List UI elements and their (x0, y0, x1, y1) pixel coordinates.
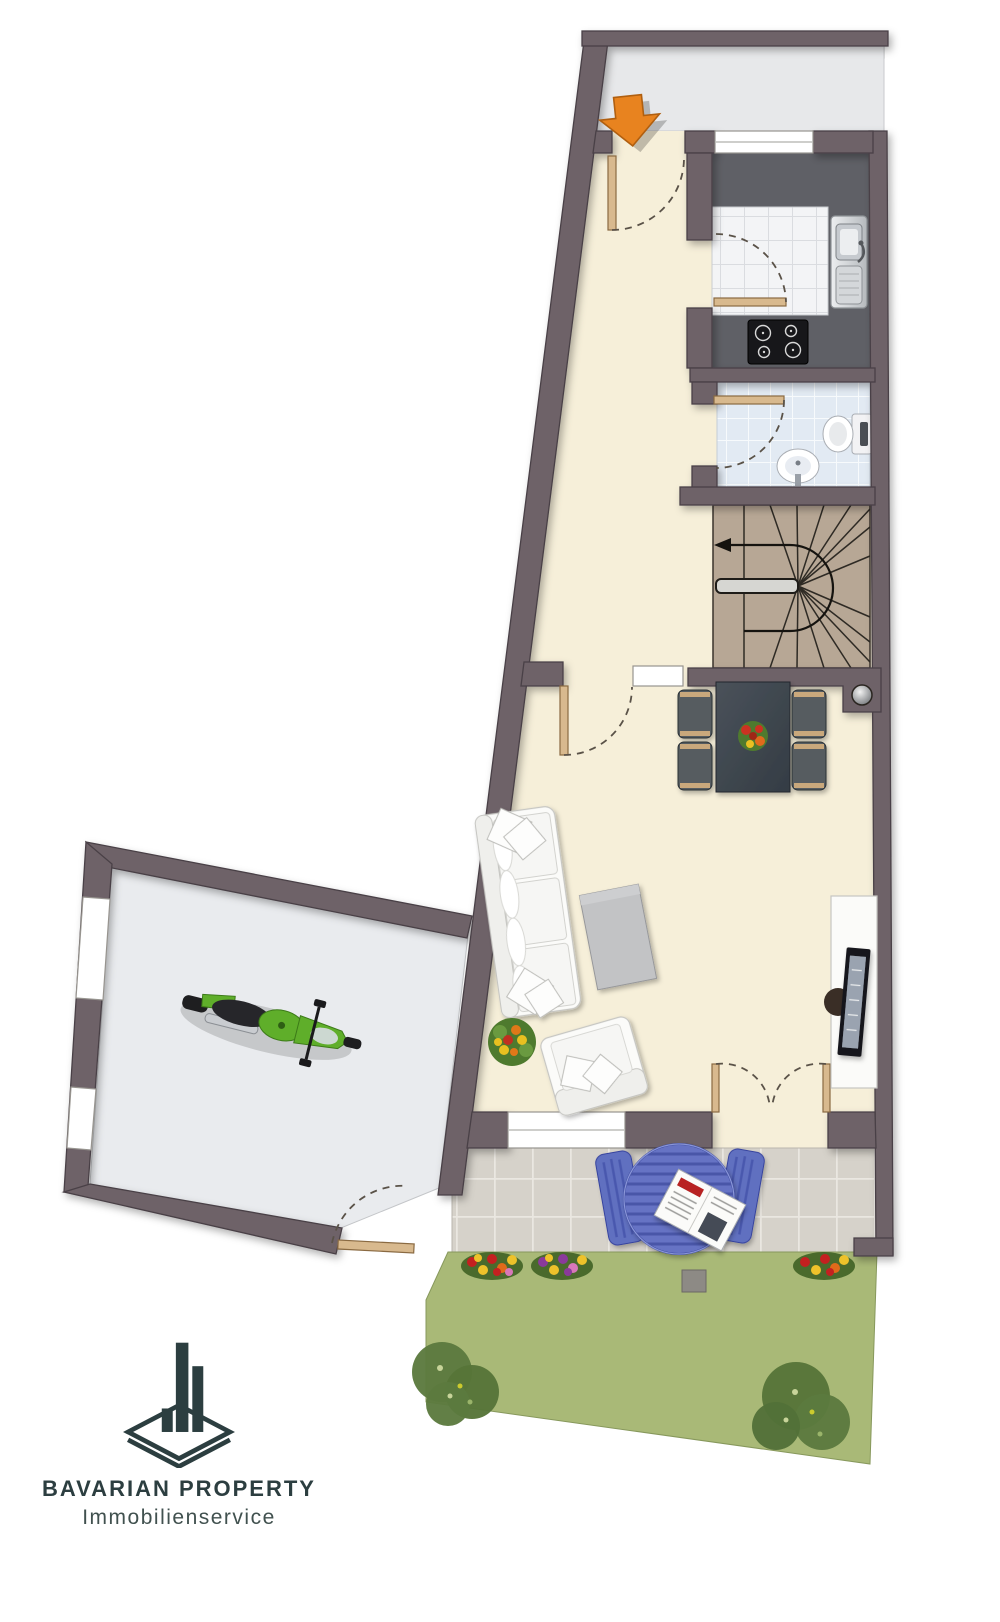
kitchen-top-wall (813, 131, 873, 153)
terrace-wall-stub (854, 1238, 893, 1256)
kitchen-sink (831, 216, 867, 308)
flower-bed-right (793, 1252, 855, 1280)
table-flowers (738, 721, 768, 751)
kitchen-left-stub (687, 308, 712, 368)
dining-chair (678, 742, 712, 790)
logo: BAVARIAN PROPERTY Immobilienservice (26, 1338, 332, 1530)
floor-plant (488, 1018, 536, 1066)
logo-icon (104, 1338, 254, 1468)
cooktop (748, 320, 808, 364)
living-south-wall-b (625, 1112, 712, 1148)
toilet (823, 414, 872, 454)
living-south-wall-a (467, 1112, 508, 1148)
garden-paver (682, 1270, 706, 1292)
flower-bed-middle (531, 1252, 593, 1280)
logo-subtitle: Immobilienservice (26, 1506, 332, 1530)
dining-chair (792, 742, 826, 790)
flower-bed-left (461, 1252, 523, 1280)
floor-plan-page: BAVARIAN PROPERTY Immobilienservice (0, 0, 1000, 1622)
stair-handrail (716, 579, 798, 593)
staircase (713, 505, 870, 668)
hall-divider-stub (521, 662, 563, 686)
dining-chair (792, 690, 826, 738)
passage-lintel (633, 666, 683, 686)
column (852, 685, 872, 705)
wc-stair-wall (680, 487, 875, 505)
kitchen (712, 153, 870, 368)
entry-wall-stub (593, 131, 612, 153)
kitchen-left-wall (687, 153, 712, 240)
entry-kitchen-wall (685, 131, 715, 153)
kitchen-wc-wall (690, 368, 875, 382)
living-south-wall-c (828, 1112, 876, 1148)
top-wall (582, 31, 888, 46)
garage-window-lower (67, 1087, 96, 1150)
logo-title: BAVARIAN PROPERTY (26, 1476, 332, 1502)
wc-left-upper (692, 382, 717, 404)
dining-chair (678, 690, 712, 738)
dining-area (678, 682, 826, 792)
